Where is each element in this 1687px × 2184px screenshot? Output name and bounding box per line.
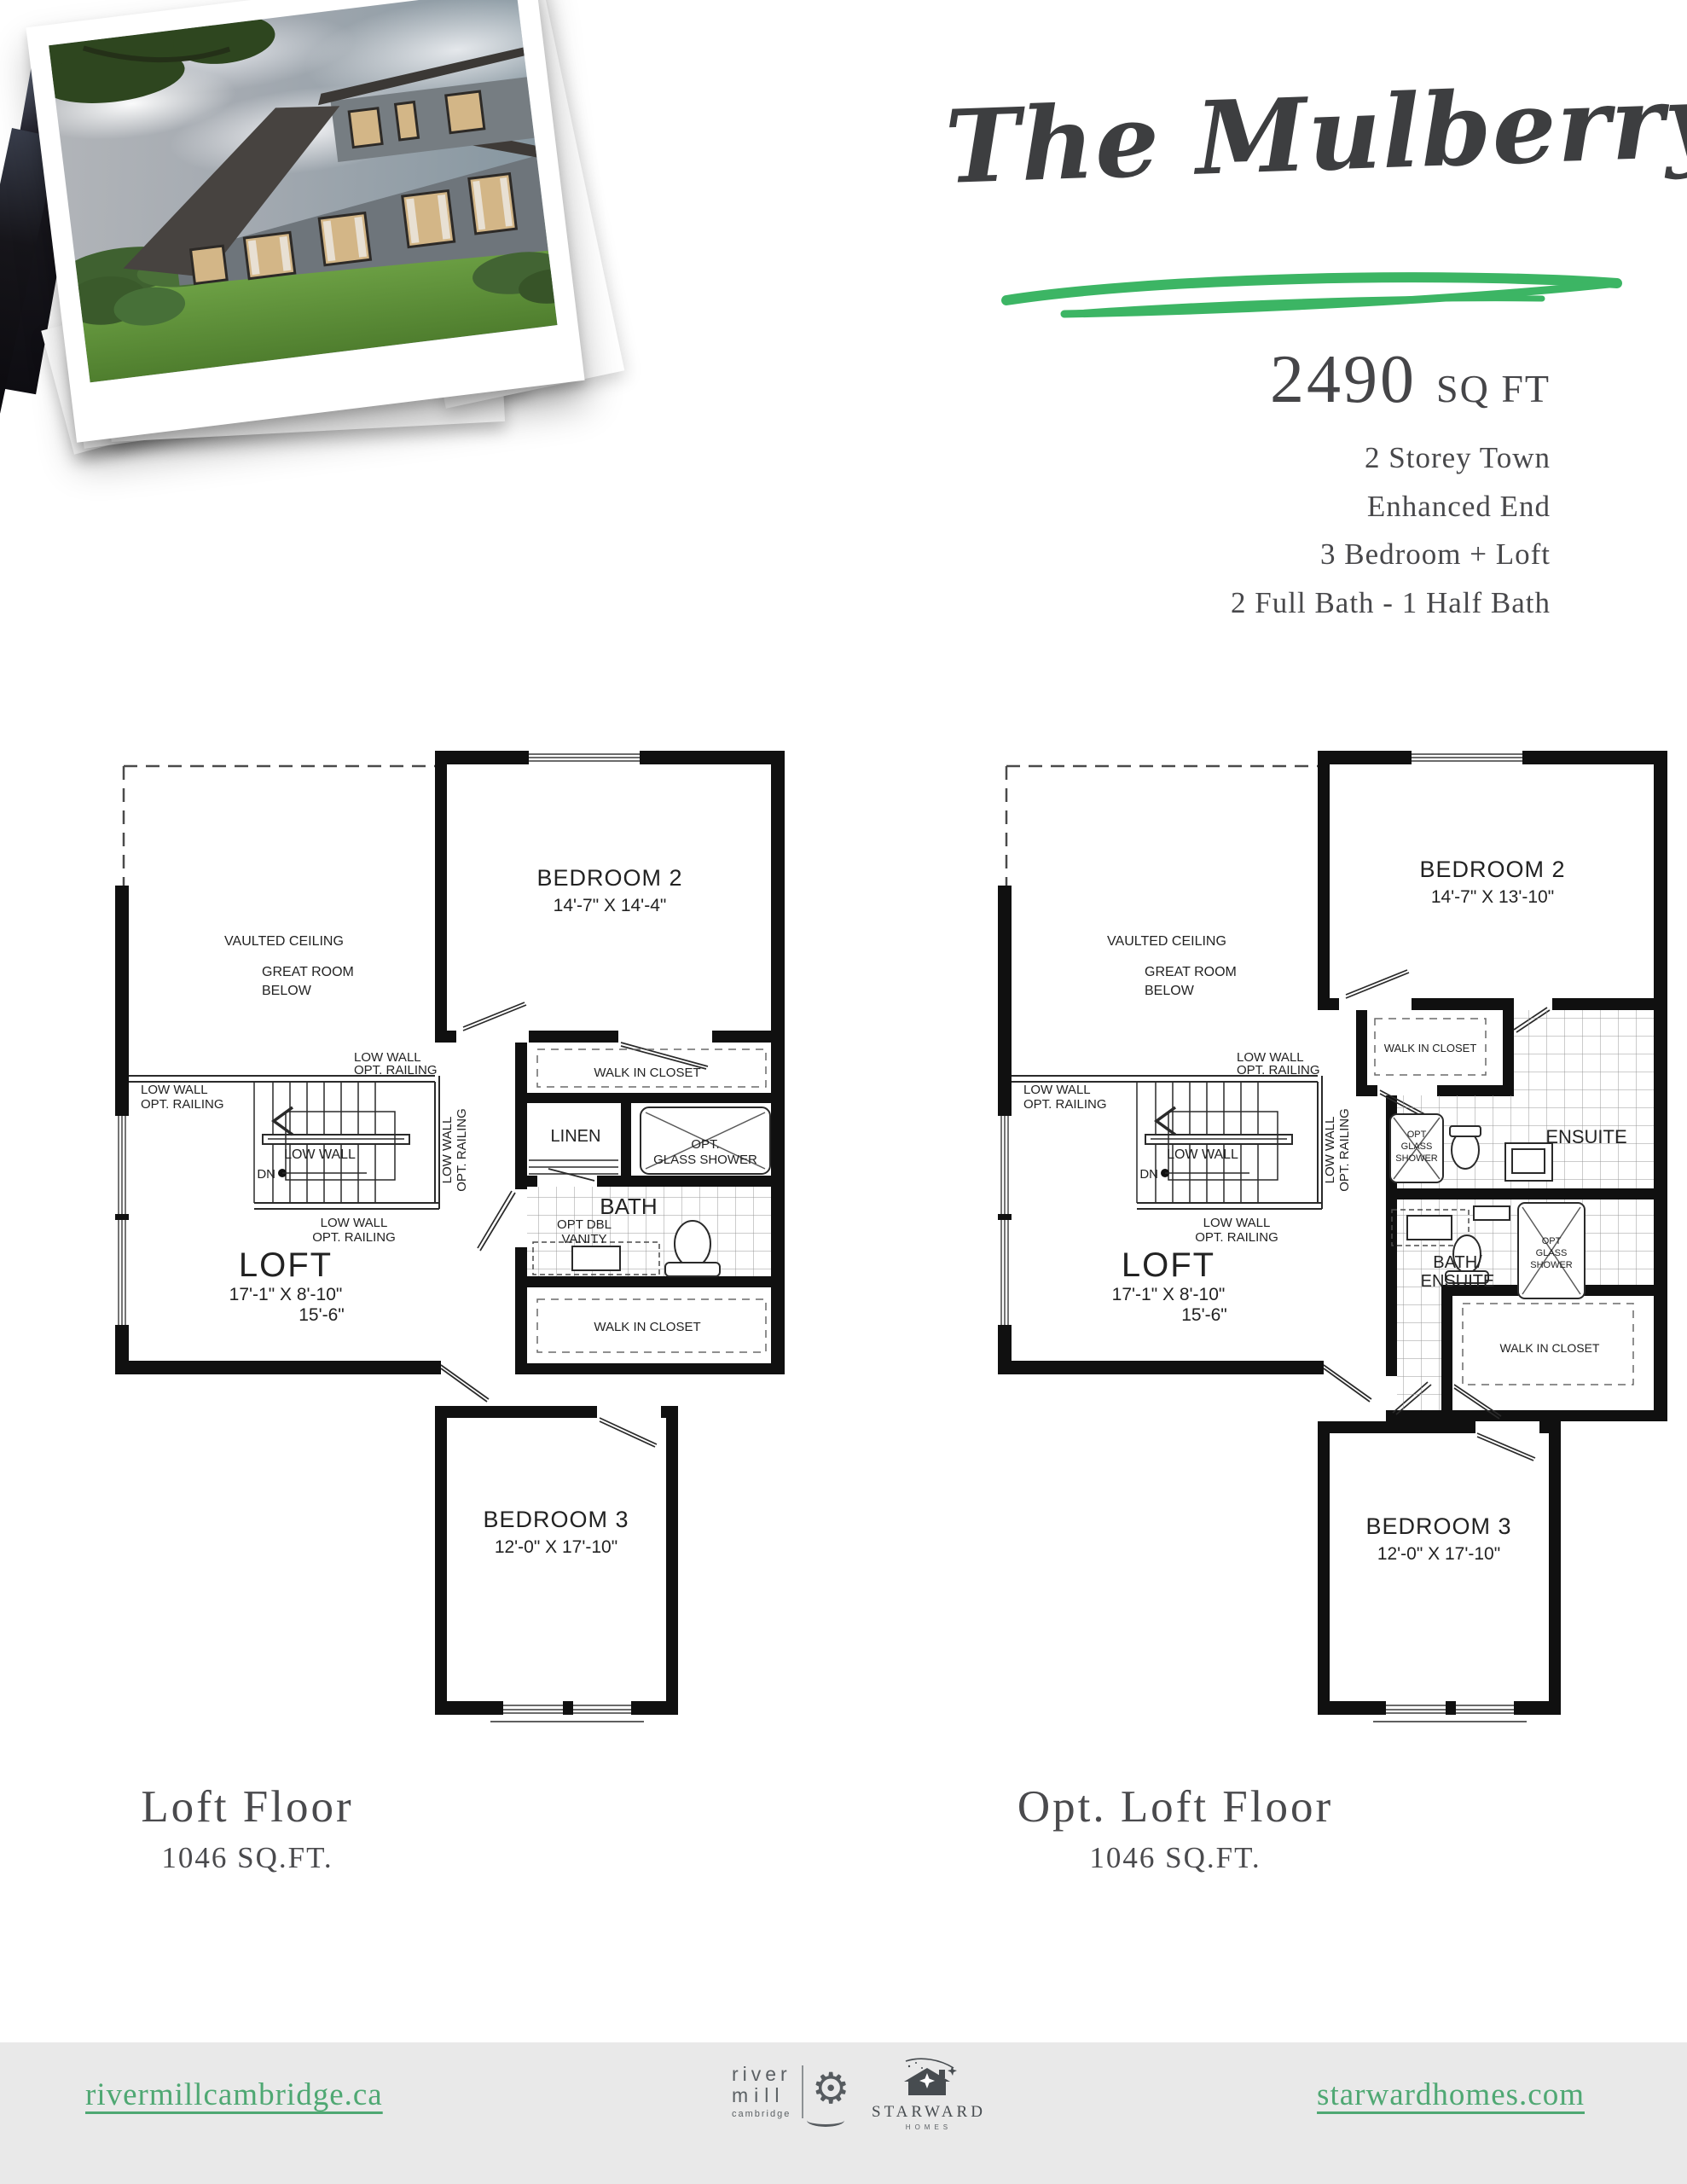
shower-label: GLASS [1401, 1141, 1433, 1152]
shower-label: OPT. [691, 1137, 719, 1152]
caption-loft-floor: Loft Floor 1046 SQ.FT. [68, 1781, 426, 1875]
vaulted-ceiling-label: VAULTED CEILING [1107, 934, 1226, 949]
bedroom2-label: BEDROOM 2 [1419, 857, 1565, 882]
rivermill-logo-text: river mill cambridge [732, 2065, 791, 2119]
caption-title: Loft Floor [68, 1781, 426, 1833]
loft-label: LOFT [1122, 1246, 1215, 1284]
loft-dims: 17'-1" X 8'-10" [1112, 1285, 1226, 1304]
vaulted-ceiling-label: VAULTED CEILING [224, 934, 344, 949]
opt-railing-label: OPT. RAILING [455, 1108, 469, 1192]
low-wall-label: LOW WALL [440, 1117, 455, 1184]
house-rendering-art [49, 0, 557, 382]
sqft-value: 2490 [1270, 342, 1417, 417]
vanity-label: VANITY [561, 1232, 606, 1246]
bedroom2-label: BEDROOM 2 [536, 865, 682, 891]
opt-railing-label: OPT. RAILING [354, 1063, 438, 1077]
bedroom2-dims: 14'-7" X 13'-10" [1431, 887, 1554, 907]
sqft-unit: SQ FT [1436, 367, 1551, 410]
bath-ensuite-label: ENSUITE [1421, 1272, 1495, 1291]
floor-plan-loft: VAULTED CEILING GREAT ROOM BELOW LOW WAL… [72, 749, 789, 1734]
walk-in-closet-label: WALK IN CLOSET [1500, 1341, 1600, 1355]
starward-house-icon [899, 2058, 959, 2097]
tree-canopy [49, 0, 281, 112]
caption-opt-loft-floor: Opt. Loft Floor 1046 SQ.FT. [988, 1781, 1363, 1875]
ensuite-label: ENSUITE [1545, 1126, 1626, 1147]
bedroom2-dims: 14'-7" X 14'-4" [554, 896, 667, 915]
loft-dims: 15'-6" [299, 1305, 345, 1325]
model-title: The Mulberry [943, 62, 1680, 206]
opt-railing-label: OPT. RAILING [141, 1097, 224, 1112]
staircase [1145, 1082, 1292, 1203]
spec-item: 2 Full Bath - 1 Half Bath [1231, 579, 1551, 628]
low-wall-label: LOW WALL [284, 1147, 356, 1162]
green-underline-swash [996, 261, 1627, 329]
loft-dims: 15'-6" [1181, 1305, 1227, 1325]
floor-plan-opt-loft: VAULTED CEILING GREAT ROOM BELOW LOW WAL… [955, 749, 1672, 1734]
bedroom3-label: BEDROOM 3 [483, 1507, 629, 1532]
opt-railing-label: OPT. RAILING [1023, 1097, 1107, 1112]
footer-bar: rivermillcambridge.ca river mill cambrid… [0, 2042, 1687, 2184]
opt-railing-label: OPT. RAILING [1195, 1230, 1278, 1245]
bath-label: BATH [600, 1194, 657, 1219]
bedroom3-dims: 12'-0" X 17'-10" [1377, 1544, 1500, 1564]
dn-label: DN [257, 1167, 275, 1182]
shower-label: SHOWER [1395, 1153, 1438, 1164]
great-room-label: GREAT ROOM [1145, 965, 1237, 979]
starward-link[interactable]: starwardhomes.com [1317, 2077, 1585, 2113]
bath-ensuite-label: BATH/ [1433, 1253, 1482, 1272]
caption-sqft: 1046 SQ.FT. [68, 1841, 426, 1875]
caption-sqft: 1046 SQ.FT. [988, 1841, 1363, 1875]
rivermill-line: cambridge [732, 2110, 791, 2119]
shower-label: OPT [1542, 1236, 1562, 1246]
spec-list: 2 Storey Town Enhanced End 3 Bedroom + L… [1231, 434, 1551, 628]
rivermill-line: river [732, 2065, 791, 2084]
low-wall-label: LOW WALL [1023, 1083, 1091, 1097]
spec-item: 3 Bedroom + Loft [1231, 531, 1551, 579]
starward-name: STARWARD [872, 2103, 986, 2122]
low-wall-label: LOW WALL [1323, 1117, 1337, 1184]
flyer-page: The Mulberry 2490 SQ FT 2 Storey Town En… [0, 0, 1687, 2184]
rivermill-logo: river mill cambridge ⚙ [732, 2065, 850, 2119]
great-room-label: BELOW [1145, 984, 1195, 998]
toilet [675, 1221, 710, 1267]
loft-label: LOFT [239, 1246, 333, 1284]
low-wall-label: LOW WALL [141, 1083, 208, 1097]
starward-sub: HOMES [872, 2123, 986, 2131]
square-footage: 2490 SQ FT [1231, 341, 1551, 419]
bedroom3-label: BEDROOM 3 [1365, 1513, 1511, 1539]
shower-label: GLASS SHOWER [653, 1153, 757, 1167]
low-wall-label: LOW WALL [321, 1216, 388, 1230]
opt-railing-label: OPT. RAILING [1337, 1108, 1352, 1192]
low-wall-label: LOW WALL [1203, 1216, 1271, 1230]
opt-railing-label: OPT. RAILING [1237, 1063, 1320, 1077]
great-room-label: BELOW [262, 984, 312, 998]
water-wave-icon [807, 2114, 844, 2127]
staircase [263, 1082, 409, 1203]
rivermill-line: mill [732, 2086, 791, 2106]
vanity-label: OPT DBL [557, 1217, 612, 1232]
waterwheel-gear-icon: ⚙ [812, 2067, 850, 2110]
shower-label: GLASS [1536, 1248, 1568, 1258]
walk-in-closet-label: WALK IN CLOSET [1384, 1042, 1477, 1054]
caption-title: Opt. Loft Floor [988, 1781, 1363, 1833]
linen-label: LINEN [551, 1127, 601, 1146]
spec-item: Enhanced End [1231, 483, 1551, 531]
rivermill-logo-divider [802, 2065, 803, 2118]
shower-label: OPT [1407, 1130, 1427, 1140]
spec-item: 2 Storey Town [1231, 434, 1551, 483]
walk-in-closet-label: WALK IN CLOSET [594, 1320, 700, 1334]
bedroom3-dims: 12'-0" X 17'-10" [495, 1537, 617, 1557]
loft-dims: 17'-1" X 8'-10" [229, 1285, 343, 1304]
rivermill-link[interactable]: rivermillcambridge.ca [85, 2077, 383, 2113]
dn-label: DN [1139, 1167, 1158, 1182]
house-rendering [49, 0, 557, 382]
spec-block: 2490 SQ FT 2 Storey Town Enhanced End 3 … [1231, 341, 1551, 628]
photo-stack [0, 0, 631, 486]
shower-label: SHOWER [1530, 1260, 1573, 1270]
low-wall-label: LOW WALL [1167, 1147, 1238, 1162]
opt-railing-label: OPT. RAILING [312, 1230, 396, 1245]
rendering-polaroid [26, 0, 584, 443]
great-room-label: GREAT ROOM [262, 965, 354, 979]
starward-logo: STARWARD HOMES [872, 2058, 986, 2131]
walk-in-closet-label: WALK IN CLOSET [594, 1066, 700, 1080]
